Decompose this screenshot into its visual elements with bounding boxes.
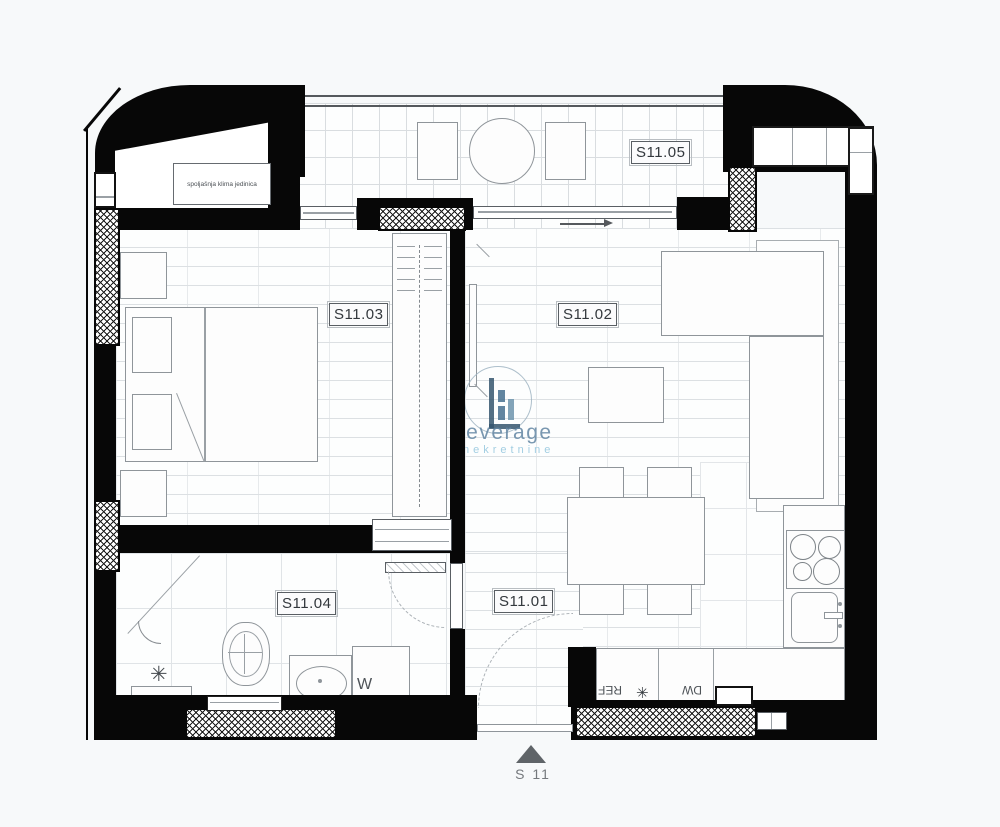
sliding-door-arrowhead	[604, 219, 613, 227]
entrance-door-sill	[477, 724, 573, 732]
bedroom-door-line	[375, 529, 449, 530]
wall-pillar-hatch	[94, 500, 120, 572]
floor-plan: ✳ Leverage nekretnine spoljašnja klima j…	[0, 0, 1000, 827]
wall-hall-bath-top	[450, 553, 465, 563]
wall-bottom-hatch-left	[185, 708, 337, 739]
wall-hatch-terrace	[378, 206, 466, 231]
bathroom-window-line	[210, 702, 279, 703]
dw-window-box	[715, 686, 753, 706]
terrace-railing	[296, 95, 748, 107]
cabinet-divider	[826, 128, 827, 165]
dining-chair	[647, 584, 692, 615]
dining-chair	[579, 467, 624, 498]
room-label-s11-05: S11.05	[631, 141, 690, 164]
ac-unit-label: spoljašnja klima jedinica	[173, 163, 271, 205]
left-wall-vent	[94, 172, 116, 208]
wall-right-of-door	[677, 197, 730, 230]
coffee-table	[588, 367, 664, 423]
left-wall-vent-line	[96, 196, 114, 198]
counter-divider	[658, 649, 659, 703]
cabinet-divider	[792, 128, 793, 165]
bath-door-frame	[450, 563, 463, 629]
nightstand-top	[120, 252, 167, 299]
wall-right	[845, 168, 877, 705]
washer-label: W	[357, 676, 372, 694]
counter-divider	[713, 649, 714, 703]
dining-table	[567, 497, 705, 585]
watermark-logo-block	[508, 399, 514, 420]
watermark-brand: Leverage	[453, 421, 553, 445]
wardrobe-shelves-left	[397, 246, 415, 294]
fridge-label: REF	[598, 683, 622, 697]
room-label-s11-01: S11.01	[494, 590, 553, 613]
nightstand-bottom	[120, 470, 167, 517]
dining-chair	[579, 584, 624, 615]
bedroom-door-sill	[372, 519, 452, 551]
sofa-top-seat	[661, 251, 824, 336]
sink-drain	[318, 679, 322, 683]
bedroom-door-line	[375, 541, 449, 542]
toilet-bowl	[229, 631, 263, 677]
faucet-dot	[838, 602, 842, 606]
wall-pillar-hatch-terrace	[728, 166, 757, 232]
burner	[793, 562, 812, 581]
wardrobe-rail-line	[419, 245, 420, 507]
sofa-right-seat	[749, 336, 824, 499]
watermark-logo-block	[498, 390, 505, 402]
sink-symbol: ✳	[636, 683, 649, 701]
shower-head-icon: ✳	[150, 662, 168, 687]
sliding-door-line	[478, 211, 672, 213]
bottom-wall-vent-line	[771, 713, 772, 729]
faucet	[824, 612, 843, 619]
entrance-marker-triangle	[516, 745, 546, 763]
bathroom-window-sill	[207, 696, 282, 711]
room-label-s11-02: S11.02	[558, 303, 617, 326]
bedroom-window-line	[303, 212, 354, 214]
terrace-chair-right	[545, 122, 586, 180]
burner	[813, 558, 840, 585]
toilet-cross-v	[244, 634, 245, 674]
cabinet-shelf-line	[850, 152, 872, 153]
dishwasher-label: DW	[682, 683, 702, 697]
burner	[818, 536, 841, 559]
room-label-s11-03: S11.03	[329, 303, 388, 326]
wall-left-outer-line	[86, 128, 88, 740]
sliding-door-sill	[473, 206, 677, 219]
faucet-dot	[838, 624, 842, 628]
wall-niche-cabinet-column	[848, 127, 874, 195]
wall-left	[94, 342, 116, 500]
dining-chair	[647, 467, 692, 498]
pillow-bottom	[132, 394, 172, 450]
burner	[790, 534, 816, 560]
wall-bottom-hatch-right	[575, 706, 757, 738]
terrace-chair-left	[417, 122, 458, 180]
wardrobe-shelves-right	[424, 246, 442, 294]
tv-panel	[469, 284, 477, 387]
section-marker-label: S 11	[511, 766, 555, 782]
watermark-logo-block	[498, 406, 505, 420]
wall-pillar-hatch	[94, 208, 120, 346]
wall-bedroom-living	[450, 228, 465, 553]
watermark-subtitle: nekretnine	[463, 444, 554, 456]
bed-mattress-line	[204, 308, 206, 461]
terrace-round-table	[469, 118, 535, 184]
pillow-top	[132, 317, 172, 373]
room-label-s11-04: S11.04	[277, 592, 336, 615]
toilet-cross-h	[228, 652, 262, 653]
sliding-door-arrow	[560, 223, 606, 225]
